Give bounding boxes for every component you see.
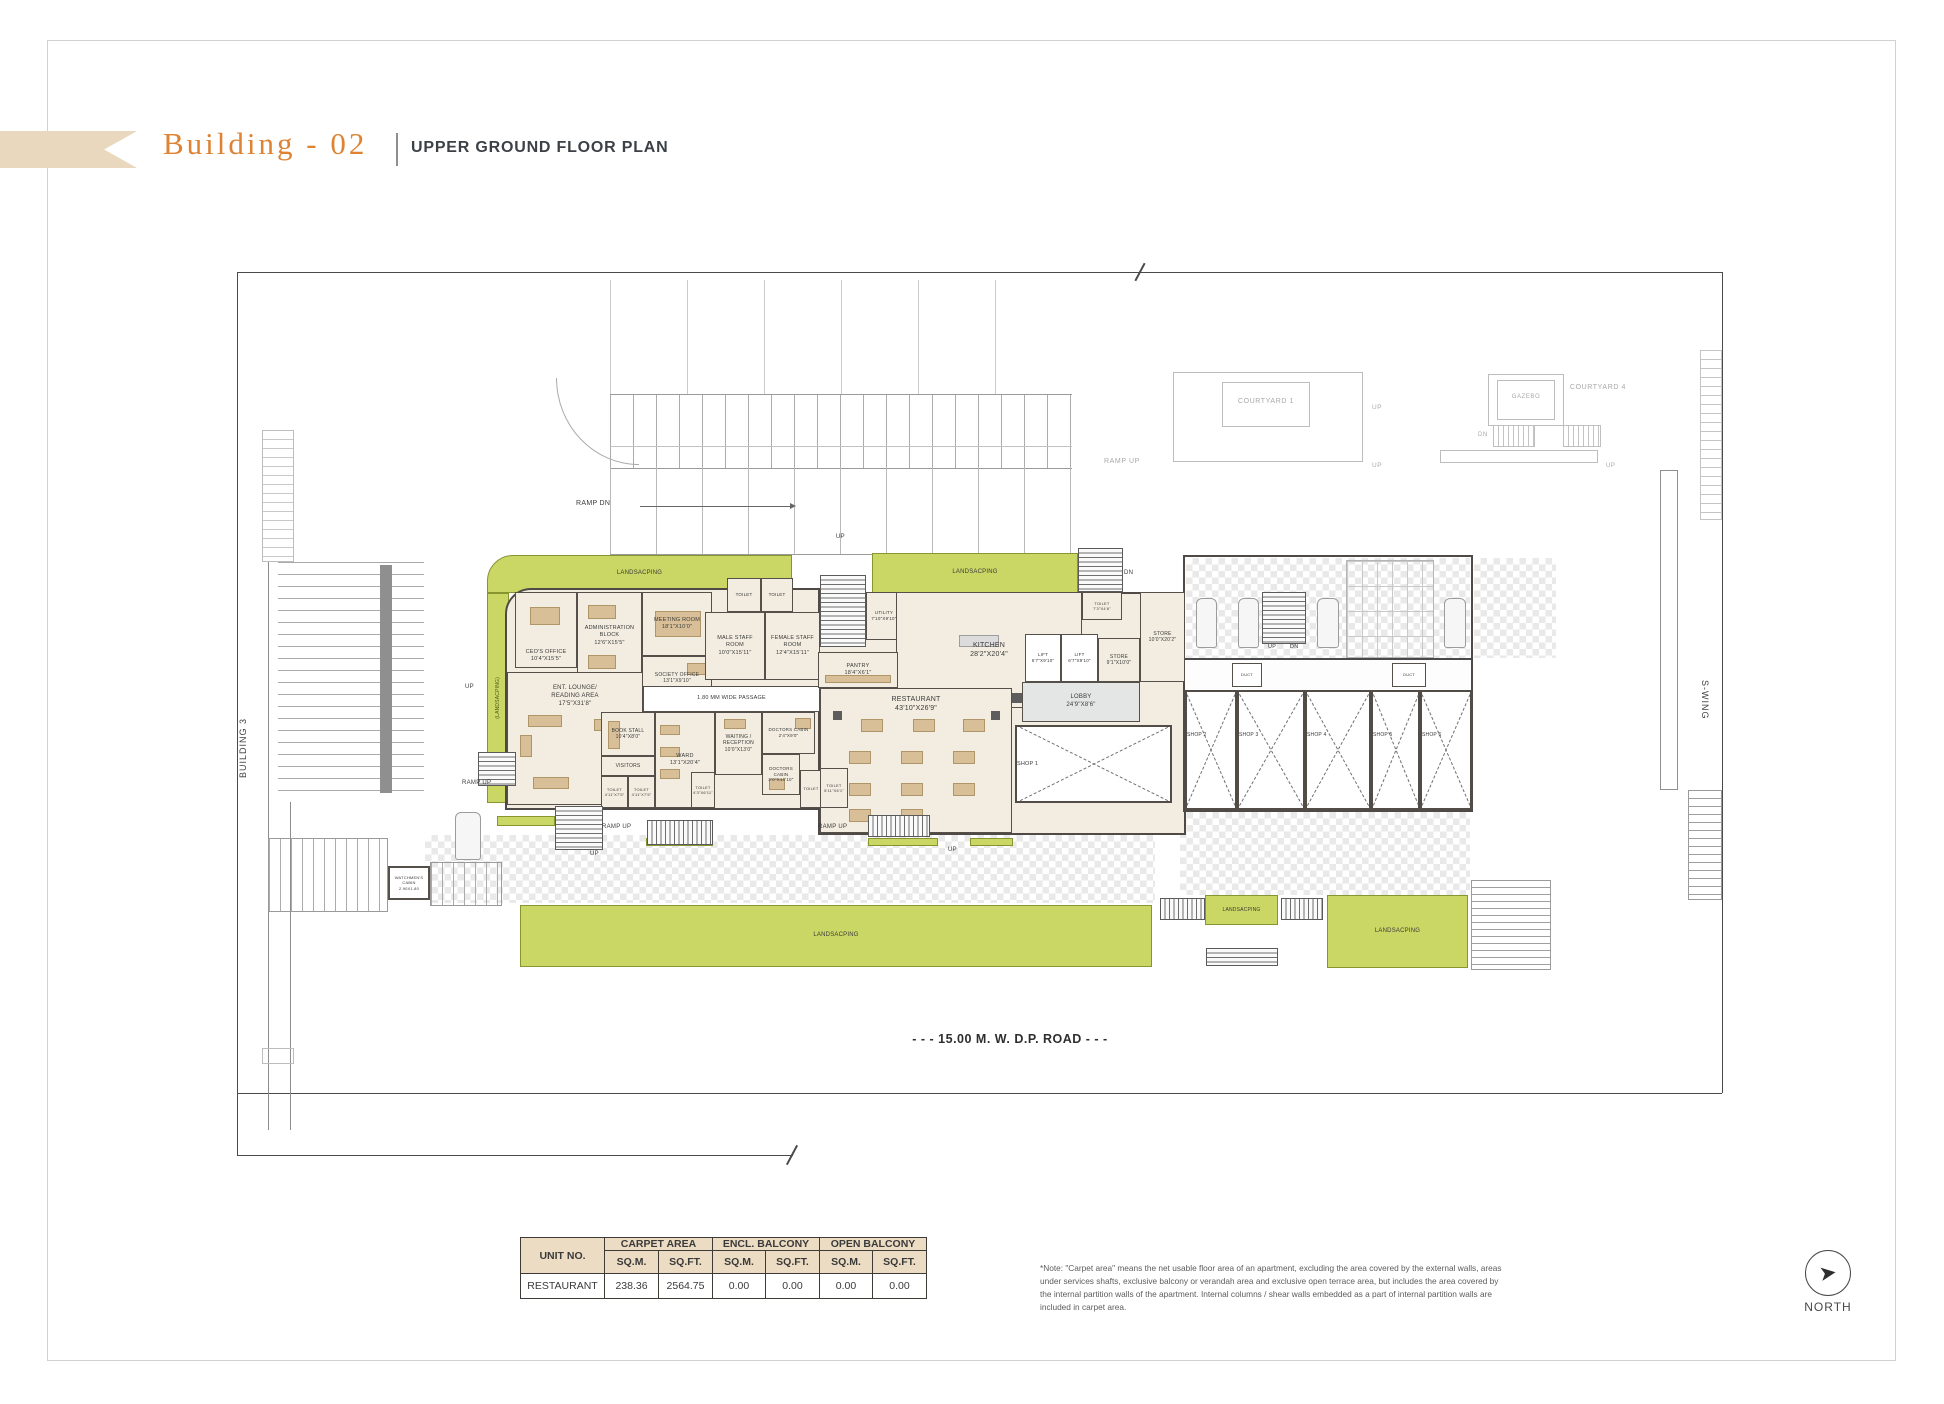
dining-table [901,751,923,764]
up-label-gazebo: UP [1606,463,1616,469]
room-label: MALE STAFF ROOM 10'0"X15'11" [717,635,753,656]
room-label: ADMINISTRATION BLOCK 12'6"X15'5" [585,625,634,646]
page-title: Building - 02 [163,126,367,162]
room-toilet: TOILET 5'11"X6'1" [820,768,848,808]
shop-4: SHOP 4 [1305,690,1371,810]
building3-label: BUILDING 3 [238,692,248,778]
landscaping-strip [970,838,1013,846]
shop-label: SHOP 2 [1187,732,1235,739]
ramp-dn-label: RAMP DN [576,500,610,507]
dining-table [963,719,985,732]
area-table: UNIT NO. CARPET AREA ENCL. BALCONY OPEN … [520,1237,927,1299]
room-lift: LIFT 6'7"X9'10" [1061,634,1098,682]
room-label: WAITING / RECEPTION 10'0"X13'0" [723,734,754,754]
room-label: TOILET 4'11"X7'5" [632,787,652,797]
room-label: DOCTORS CABIN 2'4"X9'0" [768,727,808,739]
room-visitors: VISITORS [601,756,655,776]
ramp-up-label-top: RAMP UP [1104,458,1140,465]
room-toilet: TOILET [761,578,793,612]
plan-title: UPPER GROUND FLOOR PLAN [411,139,669,157]
shop-label: SHOP 6 [1422,732,1470,739]
ghost-band [1440,450,1598,463]
room-label: PANTRY 18'4"X6'1" [845,663,872,677]
col-unit-no: UNIT NO. [521,1238,605,1274]
car [1196,598,1217,648]
room-label: TOILET [803,786,818,791]
sofa [528,715,562,727]
right-ghost-ladder [1700,350,1722,520]
shop-1: SHOP 1 [1015,725,1172,803]
room-label: WATCHMEN'S CABIN 2.90X1.80 [395,875,424,891]
room-label: LOBBY 24'9"X8'6" [1066,694,1095,710]
landscaping-area: LANDSACPING [520,905,1152,967]
col-sqm: SQ.M. [820,1251,873,1274]
shop-label: SHOP 4 [1307,732,1369,739]
stair-parking [1262,592,1306,644]
car [1238,598,1259,648]
shop-5: SHOP 5 [1371,690,1420,810]
bed [660,769,680,779]
room-restaurant: RESTAURANT 43'10"X26'9" [820,688,1012,833]
stair-garden-lower [1206,948,1278,966]
stair-entrance-ward [647,820,713,845]
desk [588,655,616,669]
landscaping-label: (LANDSACPING) [495,677,502,719]
shops-parking-wall [1183,658,1473,660]
boundary-road-edge [237,1155,793,1156]
landscaping-area: LANDSACPING [1327,895,1468,968]
room-label: MEETING ROOM 18'1"X10'0" [654,617,700,631]
stair-entrance-restaurant [868,815,930,837]
room-label: WARD 13'1"X20'4" [670,753,700,767]
duct: DUCT [1232,663,1262,687]
room-label: DOCTORS CABIN 2'0"X10'10" [763,766,799,784]
room-doctors-cabin: DOCTORS CABIN 2'4"X9'0" [762,712,815,754]
dining-table [913,719,935,732]
dining-table [861,719,883,732]
landscaping-label: LANDSACPING [813,932,858,940]
shop-label: SHOP 1 [1017,761,1170,768]
room-label: RESTAURANT 43'10"X26'9" [892,695,941,713]
col-sqm: SQ.M. [605,1251,659,1274]
dining-table [901,783,923,796]
two-wheeler-parking-row [610,394,1072,469]
table-row: RESTAURANT 238.36 2564.75 0.00 0.00 0.00… [521,1274,927,1299]
cell-encl-sqm: 0.00 [713,1274,766,1299]
up-label: UP [590,851,599,857]
duct: DUCT [1392,663,1426,687]
room-pantry: PANTRY 18'4"X6'1" [818,652,898,688]
room-label: ENT. LOUNGE/ READING AREA 17'5"X31'8" [551,685,598,708]
dining-table [849,751,871,764]
parking-row-midline [610,446,1072,447]
cell-encl-sqft: 0.00 [766,1274,820,1299]
desk [588,605,616,619]
shop-3: SHOP 3 [1237,690,1305,810]
stair-garden [1160,898,1205,920]
shop-2: SHOP 2 [1185,690,1237,810]
stair-kitchen-side [1078,548,1123,592]
landscaping-strip [497,816,555,826]
upper-column-grid [610,280,1072,394]
room-female-staff: FEMALE STAFF ROOM 12'4"X15'11" [765,612,820,680]
room-label: FEMALE STAFF ROOM 12'4"X15'11" [771,635,814,656]
boundary-bottom [237,1093,1722,1094]
north-arrow-icon: ➤ [1818,1261,1838,1284]
dn-label-parking: DN [1290,644,1299,650]
up-label: UP [948,847,957,853]
room-book-stall: BOOK STALL 10'4"X8'0" [601,712,655,756]
shop-label: SHOP 3 [1239,732,1303,739]
ghost-stair [1563,425,1601,447]
cell-unit: RESTAURANT [521,1274,605,1299]
bed [660,725,680,735]
car [455,812,481,860]
paving-shopfront [1180,812,1470,895]
sofa [533,777,569,789]
passage: 1.80 MM WIDE PASSAGE [643,686,820,712]
desk [724,719,746,729]
north-label: NORTH [1798,1300,1858,1314]
ramp-dn-arrowhead [790,503,796,509]
boundary-right [1722,272,1723,1093]
ramp-up-label: RAMP UP [462,780,491,786]
room-label: TOILET [736,592,753,598]
room-doctors-cabin: DOCTORS CABIN 2'0"X10'10" [762,754,800,795]
sofa [520,735,532,757]
room-store: STORE 10'0"X20'2" [1140,592,1185,682]
left-parking-stalls [268,838,388,912]
room-label: TOILET 7'3"X4'6" [1093,601,1111,611]
room-label: KITCHEN 28'2"X20'4" [970,641,1008,659]
title-divider [396,133,398,166]
landscaping-label: LANDSACPING [617,570,662,578]
landscaping-area: LANDSACPING [1205,895,1278,925]
room-lift: LIFT 6'7"X9'10" [1025,634,1061,682]
stair-entrance-west [555,806,603,850]
ramp-grid [610,467,1072,555]
duct-label: DUCT [1403,672,1415,677]
courtyard1-label: COURTYARD 1 [1222,398,1310,405]
dn-label-gazebo: DN [1478,432,1488,438]
room-label: CEO'S OFFICE 10'4"X15'5" [526,649,567,663]
room-waiting-reception: WAITING / RECEPTION 10'0"X13'0" [715,712,762,775]
paving-right-yard [1474,558,1556,658]
room-label: UTILITY 7'10"X9'10" [871,610,896,622]
landscaping-label: LANDSACPING [1375,928,1420,936]
stair-core [820,575,866,647]
shop-6: SHOP 6 [1420,690,1472,810]
room-label: BOOK STALL 10'4"X8'0" [612,728,645,741]
ghost-stair [1493,425,1535,447]
desk [530,607,560,625]
passage-label: 1.80 MM WIDE PASSAGE [697,695,766,702]
room-store: STORE 9'1"X10'0" [1098,638,1140,682]
courtyard4-label: COURTYARD 4 [1548,384,1648,391]
driveway-stalls [430,862,502,906]
column [833,711,842,720]
landscaping-label: LANDSACPING [952,569,997,577]
room-ceo-office: CEO'S OFFICE 10'4"X15'5" [515,592,577,668]
landscaping-area: LANDSACPING [872,553,1078,593]
column [991,711,1000,720]
dining-table [953,751,975,764]
stair-garden [1281,898,1323,920]
col-sqft: SQ.FT. [766,1251,820,1274]
brochure-page: { "header": { "building_title": "Buildin… [0,0,1944,1404]
ramp-up-label: RAMP UP [602,824,631,830]
up-label-parking: UP [1268,644,1276,650]
left-ghost-units [262,430,294,562]
room-meeting: MEETING ROOM 18'1"X10'0" [642,592,712,656]
north-compass: ➤ [1805,1250,1851,1296]
col-carpet-area: CARPET AREA [605,1238,713,1251]
dining-table [849,783,871,796]
car [1444,598,1466,648]
dn-label: DN [1124,570,1133,576]
paving-walkway [425,835,1155,903]
car [1317,598,1339,648]
room-label: TOILET 4'11"X7'5" [605,787,625,797]
up-label-courtyard: UP [1372,404,1382,411]
room-toilet: TOILET 7'3"X4'6" [1082,592,1122,620]
hedge-bar [380,565,392,793]
ramp-up-label: RAMP UP [818,824,847,830]
room-label: TOILET 4'3"X6'11" [693,785,713,795]
room-label: STORE 9'1"X10'0" [1107,654,1132,667]
up-label: UP [836,534,845,540]
col-encl-balcony: ENCL. BALCONY [713,1238,820,1251]
room-toilet: TOILET 4'11"X7'5" [628,776,655,808]
watchmens-cabin: WATCHMEN'S CABIN 2.90X1.80 [388,866,430,900]
up-label: UP [465,684,474,690]
room-label: VISITORS [616,763,641,770]
col-sqm: SQ.M. [713,1251,766,1274]
room-lobby: LOBBY 24'9"X8'6" [1022,682,1140,722]
dining-table [953,783,975,796]
two-wheeler-stalls [1346,560,1434,658]
room-label: LIFT 6'7"X9'10" [1068,652,1090,664]
room-toilet: TOILET [800,770,822,808]
road-label: - - - 15.00 M. W. D.P. ROAD - - - [875,1032,1145,1046]
room-label: STORE 10'0"X20'2" [1149,631,1177,644]
building3-tie [262,1048,294,1064]
col-sqft: SQ.FT. [659,1251,713,1274]
s-wing-outline [1660,470,1678,790]
cell-carpet-sqm: 238.36 [605,1274,659,1299]
s-wing-stripes [1688,790,1722,900]
col-sqft: SQ.FT. [873,1251,927,1274]
col-open-balcony: OPEN BALCONY [820,1238,927,1251]
gazebo-label: GAZEBO [1497,394,1555,400]
s-wing-label: S-WING [1700,680,1710,760]
shop-label: SHOP 5 [1373,732,1418,739]
table-header-row: UNIT NO. CARPET AREA ENCL. BALCONY OPEN … [521,1238,927,1251]
room-toilet: TOILET 4'3"X6'11" [691,772,715,808]
gazebo-inner [1497,380,1555,420]
room-label: LIFT 6'7"X9'10" [1032,652,1054,664]
striped-paving [1471,880,1551,970]
room-label: TOILET 5'11"X6'1" [824,783,844,793]
carpet-area-note: *Note: "Carpet area" means the net usabl… [1040,1262,1510,1313]
room-label: TOILET [769,592,786,598]
cell-open-sqm: 0.00 [820,1274,873,1299]
room-label: SOCIETY OFFICE 13'1"X9'10" [655,672,699,685]
landscaping-strip [868,838,938,846]
room-male-staff: MALE STAFF ROOM 10'0"X15'11" [705,612,765,680]
up-label-courtyard: UP [1372,462,1382,469]
boundary-top [237,272,1722,273]
room-toilet: TOILET 4'11"X7'5" [601,776,628,808]
pergola-trellis [278,562,424,802]
duct-label: DUCT [1241,672,1253,677]
cell-open-sqft: 0.00 [873,1274,927,1299]
cell-carpet-sqft: 2564.75 [659,1274,713,1299]
landscaping-label: LANDSACPING [1222,907,1260,914]
room-toilet: TOILET [727,578,761,612]
room-administration: ADMINISTRATION BLOCK 12'6"X15'5" [577,592,642,680]
ramp-dn-arrow-line [640,506,790,507]
